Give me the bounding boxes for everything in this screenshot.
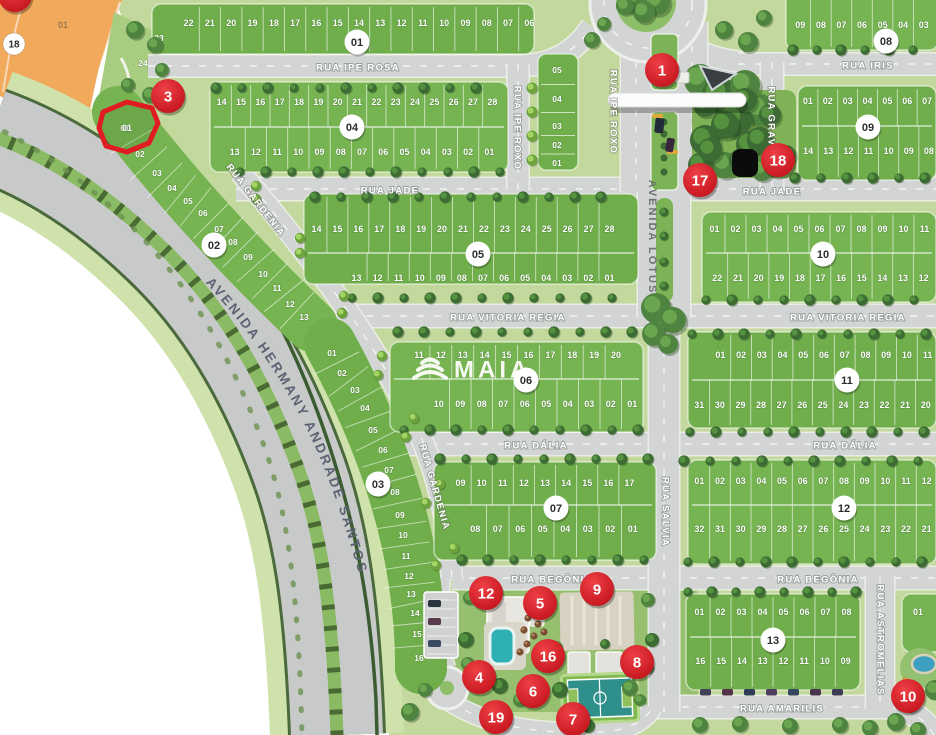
tree-crown xyxy=(714,114,729,129)
badge-number: 18 xyxy=(8,40,20,51)
street-label-jade-right: RUA JADE xyxy=(743,186,802,197)
street-label-dalia-right: RUA DÁLIA xyxy=(813,440,877,451)
car-icon xyxy=(744,689,755,696)
lot-number: 02 xyxy=(605,524,615,534)
tree-crown xyxy=(766,330,771,335)
lot-number: 04 xyxy=(898,20,908,30)
badge-number: 01 xyxy=(351,37,363,49)
tree-crown xyxy=(400,426,405,431)
tree-crown xyxy=(419,684,427,692)
tree-crown xyxy=(712,428,718,434)
tree-crown xyxy=(472,328,478,334)
tree-crown xyxy=(634,426,640,432)
lot-number: 06 xyxy=(378,445,388,455)
lot-number: 03 xyxy=(919,20,929,30)
lot-number: 09 xyxy=(315,147,325,157)
lot-number: 06 xyxy=(799,607,809,617)
lot-number: 14 xyxy=(217,97,227,107)
tree-crown xyxy=(740,34,751,45)
lot-number: 02 xyxy=(715,607,725,617)
tree-crown xyxy=(432,561,438,567)
lot-number: 22 xyxy=(901,524,911,534)
lot-number: 28 xyxy=(487,97,497,107)
lot-number: 12 xyxy=(436,350,446,360)
tree-crown xyxy=(832,296,837,301)
umbrella-icon xyxy=(520,626,527,633)
lot-number: 17 xyxy=(275,97,285,107)
tree-crown xyxy=(524,328,529,333)
tree-crown xyxy=(467,193,472,198)
tree-crown xyxy=(588,556,593,561)
tree-crown xyxy=(488,455,494,461)
lot-number: 02 xyxy=(823,96,833,106)
lot-number: 07 xyxy=(835,224,845,234)
lot-number: 32 xyxy=(694,524,704,534)
umbrella-top xyxy=(522,628,525,631)
lot-number: 14 xyxy=(311,224,321,234)
tree-crown xyxy=(554,684,563,693)
tree-crown xyxy=(817,174,822,179)
tree-crown xyxy=(614,556,620,562)
lot-number: 02 xyxy=(715,476,725,486)
umbrella-top xyxy=(525,642,528,645)
tree-crown xyxy=(910,296,915,301)
lot-number: 05 xyxy=(777,476,787,486)
lot-number: 01 xyxy=(484,147,494,157)
tree-crown xyxy=(316,84,321,89)
lot-number: 23 xyxy=(500,224,510,234)
orange-zone-lot-label: 01 xyxy=(58,20,68,30)
tree-crown xyxy=(758,12,767,21)
marker-number: 3 xyxy=(164,88,172,105)
street-label-dalia-left: RUA DÁLIA xyxy=(504,440,568,451)
lot-number: 06 xyxy=(499,273,509,283)
lot-number: 25 xyxy=(429,97,439,107)
lot-number: 15 xyxy=(333,18,343,28)
tree-crown xyxy=(710,558,716,564)
lot-number: 22 xyxy=(880,400,890,410)
tree-crown xyxy=(470,168,476,174)
lot-number: 18 xyxy=(269,18,279,28)
entrance-gate-canopy xyxy=(608,93,746,107)
lot-number: 10 xyxy=(898,224,908,234)
lot-number: 03 xyxy=(736,476,746,486)
lot-number: 09 xyxy=(841,656,851,666)
lot-number: 16 xyxy=(311,18,321,28)
tree-crown xyxy=(562,556,567,561)
marker-number: 5 xyxy=(536,595,544,612)
lot-number: 03 xyxy=(552,121,562,131)
badge-number: 05 xyxy=(472,249,484,261)
lot-number: 03 xyxy=(584,399,594,409)
lot-number: 20 xyxy=(333,97,343,107)
lot-number: 03 xyxy=(751,224,761,234)
lot-number: 26 xyxy=(818,524,828,534)
lot-number: 09 xyxy=(456,478,466,488)
tree-crown xyxy=(792,330,798,336)
swimming-pool xyxy=(490,628,514,664)
lot-number: 01 xyxy=(913,607,923,617)
umbrella-icon xyxy=(516,648,523,655)
tree-crown xyxy=(394,328,400,334)
lot-number: 04 xyxy=(772,224,782,234)
lot-number: 13 xyxy=(352,273,362,283)
badge-number: 12 xyxy=(838,503,850,515)
lot-number: 07 xyxy=(836,20,846,30)
tree-crown xyxy=(128,23,138,33)
lot-number: 15 xyxy=(582,478,592,488)
lot-number: 08 xyxy=(477,399,487,409)
tree-crown xyxy=(410,414,416,420)
street-label-ipe-roxo: RUA IPE ROXO xyxy=(512,86,523,170)
tree-crown xyxy=(888,457,894,463)
lot-number: 28 xyxy=(605,224,615,234)
tree-crown xyxy=(843,174,849,180)
lot-number: 16 xyxy=(353,224,363,234)
lot-number: 15 xyxy=(236,97,246,107)
lot-number: 19 xyxy=(589,350,599,360)
car-icon xyxy=(788,689,799,696)
tree-crown xyxy=(680,457,686,463)
lot-number: 17 xyxy=(374,224,384,234)
lot-number: 01 xyxy=(604,273,614,283)
tree-crown xyxy=(842,428,848,434)
tree-crown xyxy=(296,249,302,255)
tree-crown xyxy=(478,294,483,299)
lot-number: 04 xyxy=(552,94,562,104)
tree-crown xyxy=(422,499,428,505)
lot-number: 05 xyxy=(882,96,892,106)
tree-crown xyxy=(894,428,899,433)
tree-crown xyxy=(921,174,927,180)
lot-number: 07 xyxy=(922,96,932,106)
lot-number: 08 xyxy=(482,18,492,28)
lot-number: 23 xyxy=(859,400,869,410)
lot-number: 12 xyxy=(922,476,932,486)
lot-number: 01 xyxy=(694,607,704,617)
umbrella-top xyxy=(532,634,535,637)
lot-number: 30 xyxy=(715,400,725,410)
lot-number: 16 xyxy=(836,273,846,283)
lot-number: 27 xyxy=(584,224,594,234)
lot-number: 21 xyxy=(205,18,215,28)
lot-number: 11 xyxy=(414,350,424,360)
tree-crown xyxy=(597,193,603,199)
tree-crown xyxy=(780,296,785,301)
tree-crown xyxy=(446,84,451,89)
tree-crown xyxy=(149,39,158,48)
tree-crown xyxy=(392,168,398,174)
tree-crown xyxy=(717,23,727,33)
lot-number: 16 xyxy=(695,656,705,666)
lot-number: 21 xyxy=(458,224,468,234)
lot-number: 06 xyxy=(378,147,388,157)
badge-number: 03 xyxy=(372,479,384,491)
umbrella-icon xyxy=(523,640,530,647)
street-label-astromelias: RUA ASTROMELIAS xyxy=(875,584,886,695)
marker-number: 16 xyxy=(540,648,557,665)
tree-crown xyxy=(608,294,613,299)
lot-number: 08 xyxy=(816,20,826,30)
lot-number: 03 xyxy=(843,96,853,106)
umbrella-top xyxy=(526,616,529,619)
car-icon xyxy=(428,618,441,625)
lot-number: 09 xyxy=(460,18,470,28)
tree-crown xyxy=(592,455,597,460)
tree-crown xyxy=(478,426,483,431)
car-icon xyxy=(428,600,441,607)
lot-number: 02 xyxy=(730,224,740,234)
street-label-vitoria-left: RUA VITORIA REGIA xyxy=(450,312,566,323)
tree-crown xyxy=(644,296,661,313)
lot-number: 31 xyxy=(694,400,704,410)
tree-crown xyxy=(436,455,442,461)
lot-number: 01 xyxy=(715,350,725,360)
lot-number: 17 xyxy=(290,18,300,28)
tree-crown xyxy=(660,258,665,263)
lot-number: 07 xyxy=(493,524,503,534)
umbrella-top xyxy=(518,650,521,653)
lot-number: 05 xyxy=(778,607,788,617)
umbrella-icon xyxy=(540,628,547,635)
lot-number: 03 xyxy=(583,524,593,534)
lot-number: 11 xyxy=(272,147,282,157)
lot-number: 13 xyxy=(898,273,908,283)
tree-crown xyxy=(740,330,746,336)
tree-crown xyxy=(828,588,833,593)
badge-number: 08 xyxy=(880,36,892,48)
tree-crown xyxy=(754,296,759,301)
lot-number: 07 xyxy=(384,465,394,475)
tree-crown xyxy=(837,46,843,52)
lot-number: 07 xyxy=(503,18,513,28)
marker-number: 19 xyxy=(488,709,505,726)
lot-number: 11 xyxy=(394,273,404,283)
lot-number: 02 xyxy=(552,140,562,150)
tree-crown xyxy=(290,84,295,89)
lot-number: 28 xyxy=(756,400,766,410)
tree-crown xyxy=(394,84,400,90)
lot-number: 27 xyxy=(777,400,787,410)
marker-number: 4 xyxy=(475,669,484,686)
tree-crown xyxy=(684,588,689,593)
tree-crown xyxy=(519,193,525,199)
tree-crown xyxy=(314,168,320,174)
tree-crown xyxy=(528,84,534,90)
lot-number: 14 xyxy=(561,478,571,488)
tree-crown xyxy=(644,455,650,461)
tree-crown xyxy=(296,234,302,240)
lot-number: 04 xyxy=(756,476,766,486)
badge-number: 02 xyxy=(208,240,220,252)
lot-number: 05 xyxy=(793,224,803,234)
tree-crown xyxy=(836,457,842,463)
car-icon xyxy=(428,640,441,647)
block-ground xyxy=(304,194,638,284)
lot-number: 08 xyxy=(860,350,870,360)
lot-number: 16 xyxy=(603,478,613,488)
lot-number: 14 xyxy=(803,146,813,156)
tree-crown xyxy=(892,558,897,563)
street-label-jade-left: RUA JADE xyxy=(361,185,420,196)
badge-number: 13 xyxy=(767,635,779,647)
tree-crown xyxy=(738,428,743,433)
tree-crown xyxy=(922,330,928,336)
block-ground xyxy=(152,4,534,54)
tree-crown xyxy=(598,18,606,26)
tree-crown xyxy=(122,79,130,87)
tree-crown xyxy=(642,594,650,602)
lot-number: 12 xyxy=(919,273,929,283)
lot-number: 02 xyxy=(337,368,347,378)
lot-number: 18 xyxy=(795,273,805,283)
tree-crown xyxy=(460,634,469,643)
tree-crown xyxy=(441,193,447,199)
lot-number: 22 xyxy=(712,273,722,283)
tree-crown xyxy=(366,168,371,173)
lot-number: 04 xyxy=(167,183,177,193)
block-12: 0102030405060708091011123231302928272625… xyxy=(688,460,936,564)
lot-number: 12 xyxy=(519,478,529,488)
badge-number: 07 xyxy=(550,503,562,515)
lot-number: 03 xyxy=(736,607,746,617)
tree-crown xyxy=(732,457,737,462)
tree-crown xyxy=(889,715,899,725)
lot-number: 19 xyxy=(774,273,784,283)
lot-number: 24 xyxy=(521,224,531,234)
street-label-begonia-left: RUA BEGÔNIA xyxy=(511,573,593,585)
tree-crown xyxy=(452,294,458,300)
lot-number: 09 xyxy=(881,350,891,360)
tree-crown xyxy=(556,294,561,299)
lot-number: 02 xyxy=(583,273,593,283)
lot-number: 12 xyxy=(778,656,788,666)
tree-crown xyxy=(702,296,707,301)
lot-number: 01 xyxy=(694,476,704,486)
lot-number: 11 xyxy=(799,656,809,666)
lot-number: 13 xyxy=(758,656,768,666)
lot-number: 19 xyxy=(416,224,426,234)
tree-crown xyxy=(342,84,348,90)
marker-number: 18 xyxy=(770,152,787,169)
tree-crown xyxy=(804,588,810,594)
lot-number: 07 xyxy=(820,607,830,617)
block-05: 1415161718192021222324252627281312111009… xyxy=(304,194,638,284)
lot-number: 16 xyxy=(255,97,265,107)
tree-crown xyxy=(758,457,764,463)
lot-number: 08 xyxy=(457,273,467,283)
lot-number: 21 xyxy=(733,273,743,283)
lot-number: 07 xyxy=(357,147,367,157)
tree-crown xyxy=(340,168,346,174)
tree-crown xyxy=(858,296,864,302)
car-icon xyxy=(766,689,777,696)
lot-number: 25 xyxy=(839,524,849,534)
lot-number: 22 xyxy=(371,97,381,107)
tree-crown xyxy=(608,426,613,431)
tree-crown xyxy=(834,719,843,728)
tree-crown xyxy=(756,588,762,594)
tree-crown xyxy=(528,132,534,138)
street-label-vitoria-right: RUA VITORIA REGIA xyxy=(790,312,906,323)
tree-crown xyxy=(566,455,572,461)
tree-crown xyxy=(576,328,581,333)
lot-number: 28 xyxy=(777,524,787,534)
median-shrub xyxy=(660,154,667,161)
lot-number: 21 xyxy=(352,97,362,107)
lot-number: 13 xyxy=(823,146,833,156)
lot-number: 10 xyxy=(434,399,444,409)
lot-number: 16 xyxy=(414,653,424,663)
lot-number: 25 xyxy=(542,224,552,234)
lot-number: 21 xyxy=(922,524,932,534)
lot-number: 13 xyxy=(540,478,550,488)
lot-number: 18 xyxy=(567,350,577,360)
tree-crown xyxy=(374,294,380,300)
lot-number: 04 xyxy=(360,403,370,413)
lot-number: 05 xyxy=(183,196,193,206)
lot-number: 07 xyxy=(498,399,508,409)
block-13b: 01 xyxy=(902,594,936,652)
tree-crown xyxy=(852,588,858,594)
lot-number: 03 xyxy=(757,350,767,360)
highlighted-lot[interactable]: 01 xyxy=(99,102,158,152)
marker-number: 17 xyxy=(692,172,709,189)
tree-crown xyxy=(780,588,785,593)
lot-number: 09 xyxy=(860,476,870,486)
tree-crown xyxy=(884,296,890,302)
lot-number: 26 xyxy=(449,97,459,107)
tree-crown xyxy=(514,455,519,460)
lot-number: 20 xyxy=(226,18,236,28)
tree-crown xyxy=(262,168,268,174)
tree-crown xyxy=(288,168,293,173)
tree-crown xyxy=(498,328,503,333)
lot-number: 04 xyxy=(560,524,570,534)
highlighted-lot-number: 01 xyxy=(122,123,132,133)
lot-number: 25 xyxy=(818,400,828,410)
tree-crown xyxy=(550,328,556,334)
tree-crown xyxy=(660,282,665,287)
lot-number: 11 xyxy=(418,18,428,28)
lot-number: 20 xyxy=(611,350,621,360)
lot-number: 13 xyxy=(375,18,385,28)
lot-number: 08 xyxy=(336,147,346,157)
lot-number: 10 xyxy=(880,476,890,486)
tree-crown xyxy=(504,294,510,300)
tree-crown xyxy=(663,310,677,324)
tree-crown xyxy=(530,294,535,299)
lot-number: 02 xyxy=(463,147,473,157)
lot-number: 08 xyxy=(228,237,238,247)
tree-crown xyxy=(458,556,464,562)
lot-number: 12 xyxy=(404,571,414,581)
lot-number: 15 xyxy=(412,629,422,639)
street-label-begonia-right: RUA BEGÔNIA xyxy=(777,573,859,585)
tree-crown xyxy=(420,84,426,90)
tree-crown xyxy=(540,455,545,460)
tree-crown xyxy=(618,455,624,461)
lot-number: 01 xyxy=(709,224,719,234)
umbrella-top xyxy=(542,630,545,633)
lot-number: 14 xyxy=(410,608,420,618)
lot-number: 24 xyxy=(410,97,420,107)
median-shrub xyxy=(660,168,667,175)
lot-number: 02 xyxy=(606,399,616,409)
marker-number: 10 xyxy=(900,688,917,705)
car-icon xyxy=(700,689,711,696)
tree-crown xyxy=(688,330,693,335)
